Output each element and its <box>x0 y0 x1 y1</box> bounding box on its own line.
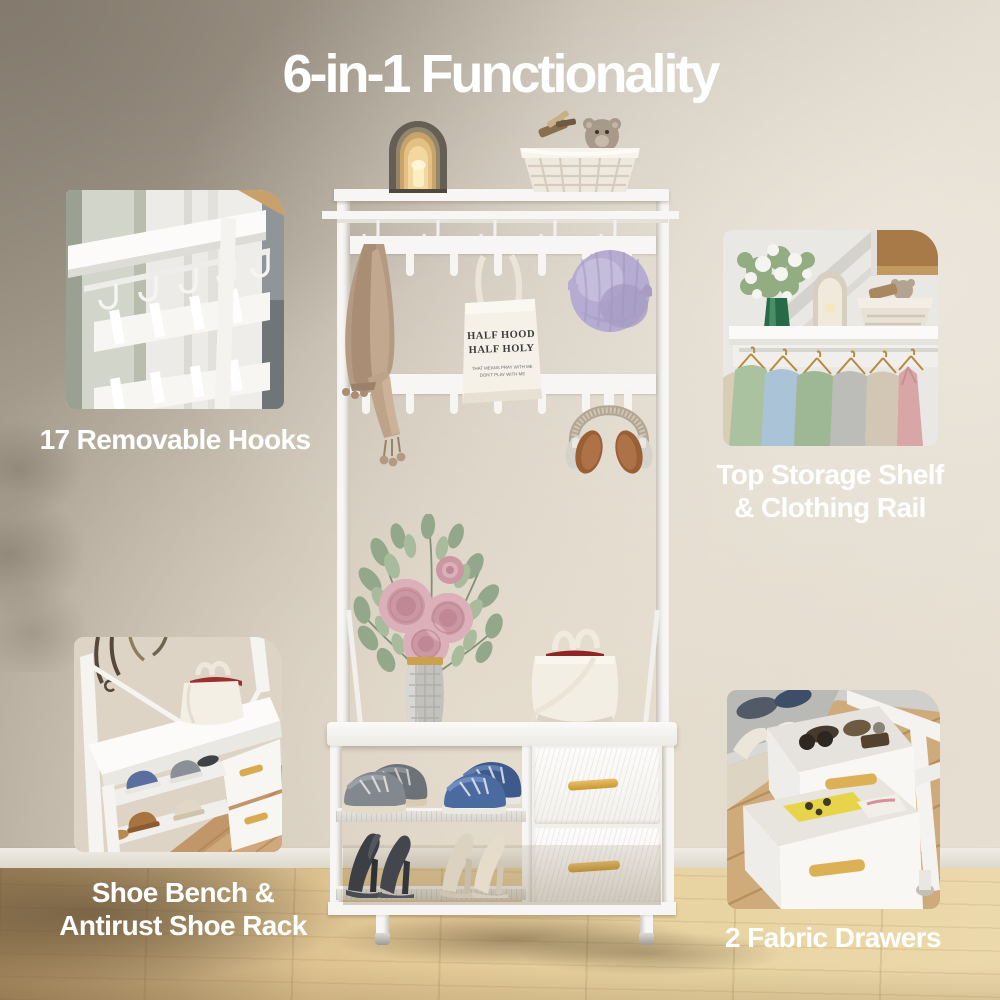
svg-text:HALF HOLY: HALF HOLY <box>469 343 535 356</box>
